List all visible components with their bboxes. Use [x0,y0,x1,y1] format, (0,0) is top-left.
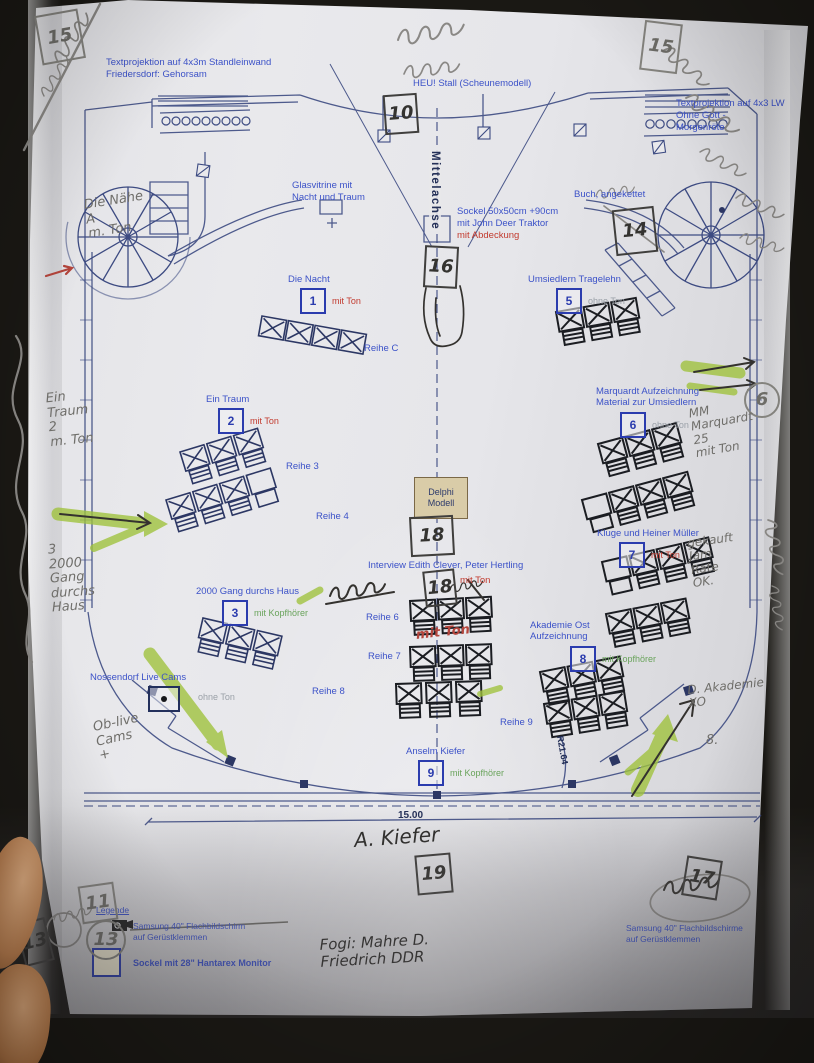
station-6-sound-note: ohne Ton [652,420,689,430]
station-2-sound-note: mit Ton [250,416,279,426]
label-textprojektion-left: Textprojektion auf 4x3m Standleinwand Fr… [106,57,271,81]
station-9: Anselm Kiefer 9 mit Kopfhörer [406,746,504,786]
delphi-modell-box: Delphi Modell [414,477,468,519]
station-2-number-box: 2 [218,408,244,434]
station-7-number-box: 7 [619,542,645,568]
label-sockel: Sockel 50x50cm +90cm mit John Deer Trakt… [457,206,558,230]
legend-screens-right: Samsung 40" Flachbildschirme auf Gerüstk… [626,923,743,944]
legend-screen-item: Samsung 40" Flachbildschirm auf Gerüstkl… [133,921,245,942]
row-label-7: Reihe 7 [368,651,401,663]
balustrade-loops [162,117,727,128]
station-5-number-box: 5 [556,288,582,314]
red-pencil-arrow [46,266,72,276]
label-glasvitrine: Glasvitrine mit Nacht und Traum [292,180,365,204]
label-buch: Buch, angekettet [574,189,645,201]
station-1-title: Die Nacht [288,274,361,285]
label-textprojektion-right: Textprojektion auf 4x3 LW Ohne Gott - Mo… [676,98,785,134]
station-9-title: Anselm Kiefer [406,746,504,757]
hand-box-16: 16 [423,245,459,289]
station-7-title: Kluge und Heiner Müller [597,528,699,539]
station-3: 2000 Gang durchs Haus 3 mit Kopfhörer [196,586,308,626]
camera-dot-icon [161,696,167,702]
hand-box-14: 14 [612,206,659,256]
label-sockel-note: mit Abdeckung [457,230,519,242]
station-6: Marquardt Aufzeichnung Material zur Umsi… [596,386,699,438]
row-label-c: Reihe C [364,343,398,355]
hand-box-18-interview: 18 [422,568,458,607]
station-1-number-box: 1 [300,288,326,314]
hand-note-marquardt: MM Marquardt 25 mit Ton [688,397,759,461]
station-8-number-box: 8 [570,646,596,672]
hand-note-2000-gang: 3 2000 Gang durchs Haus [48,541,97,617]
station-5-title: Umsiedlern Tragelehn [528,274,625,285]
hand-box-10: 10 [383,93,420,135]
row-label-8: Reihe 8 [312,686,345,698]
dimension-width: 15.00 [398,810,423,821]
station-8-title: Akademie Ost Aufzeichnung [530,620,656,643]
station-4-title: Nossendorf Live Cams [90,672,186,684]
row-label-3: Reihe 3 [286,461,319,473]
station-9-sound-note: mit Kopfhörer [450,768,504,778]
row-label-6: Reihe 6 [366,612,399,624]
hand-note-naehe: Die Nähe A m. Ton [83,190,149,242]
station-4-sound-note: ohne Ton [198,692,235,703]
label-interview-note: mit Ton [460,575,490,587]
station-9-number-box: 9 [418,760,444,786]
hand-box-18-delphi: 18 [409,515,455,557]
hand-note-bottom: Fogi: Mahre D. Friedrich DDR [319,931,430,970]
hand-box-19: 19 [414,853,453,896]
hand-box-15-top-left: 15 [34,9,86,66]
station-5: Umsiedlern Tragelehn 5 ohne Ton [528,274,625,314]
row-label-9: Reihe 9 [500,717,533,729]
label-mittelachse: Mittelachse [429,150,441,231]
station-2: Ein Traum 2 mit Ton [206,394,279,434]
station-4-camera-box [148,686,180,712]
hand-note-eight: 8. [706,734,718,749]
row-label-4: Reihe 4 [316,511,349,523]
station-6-title: Marquardt Aufzeichnung Material zur Umsi… [596,386,699,409]
station-1-sound-note: mit Ton [332,296,361,306]
station-6-number-box: 6 [620,412,646,438]
photo-of-floor-plan: Textprojektion auf 4x3m Standleinwand Fr… [0,0,814,1063]
station-7-sound-note: mit Ton [651,550,680,560]
station-7: Kluge und Heiner Müller 7 mit Ton [597,528,699,568]
station-3-number-box: 3 [222,600,248,626]
ink-scribbles [60,286,756,894]
hand-box-15-top-right: 15 [639,20,683,74]
station-8-sound-note: mit Kopfhörer [602,654,656,664]
station-3-sound-note: mit Kopfhörer [254,608,308,618]
station-3-title: 2000 Gang durchs Haus [196,586,308,597]
hand-box-17: 17 [681,855,723,900]
station-8: Akademie Ost Aufzeichnung 8 mit Kopfhöre… [530,620,656,672]
legend-sockel-item: Sockel mit 28" Hantarex Monitor [133,958,271,969]
label-heustall: HEU! Stall (Scheunemodell) [413,78,531,90]
hand-note-ein-traum: Ein Traum 2 m. Ton [45,388,94,450]
hand-box-11: 11 [78,882,119,925]
station-1: Die Nacht 1 mit Ton [288,274,361,314]
station-5-sound-note: ohne Ton [588,296,625,306]
hand-circle-13: 13 [86,920,126,960]
hand-note-rate: gekauft Jam Rate OK. [686,531,739,591]
station-2-title: Ein Traum [206,394,279,405]
